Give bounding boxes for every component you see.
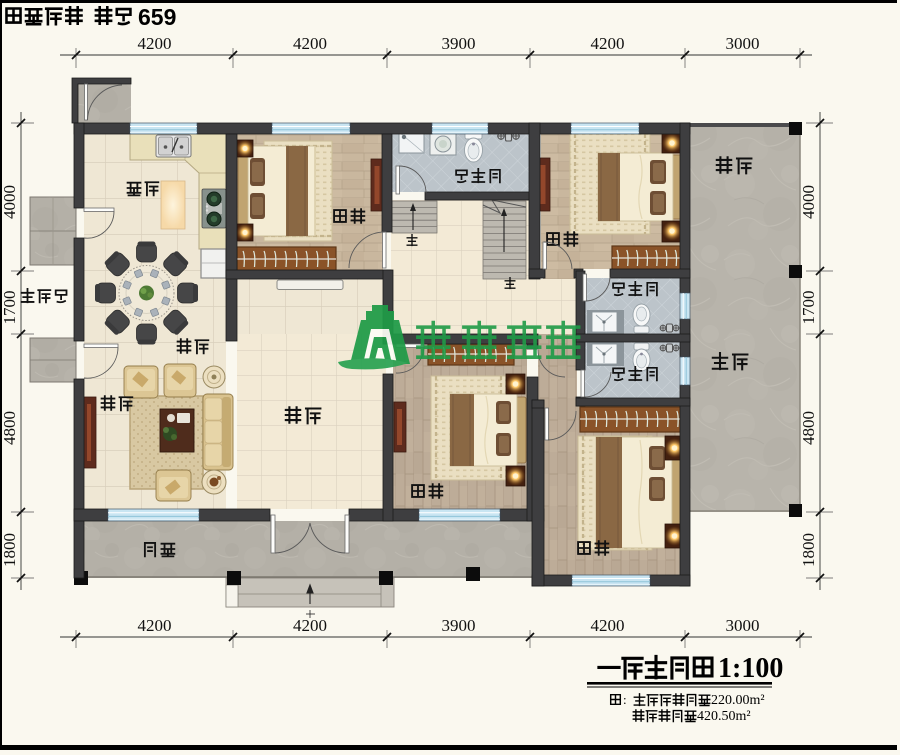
svg-text:4200: 4200 [293,616,327,635]
svg-text:3000: 3000 [726,34,760,53]
svg-text:659: 659 [138,4,176,30]
svg-text:220.00m²: 220.00m² [711,693,765,708]
svg-text:1800: 1800 [799,533,818,567]
svg-text:4800: 4800 [0,411,19,445]
svg-text:4800: 4800 [799,411,818,445]
svg-text:3900: 3900 [442,34,476,53]
svg-text:1700: 1700 [799,291,818,325]
svg-text:1800: 1800 [0,533,19,567]
svg-text:4200: 4200 [138,616,172,635]
svg-text:4200: 4200 [293,34,327,53]
svg-text:3900: 3900 [442,616,476,635]
svg-text::: : [623,692,627,707]
svg-text:4200: 4200 [591,34,625,53]
svg-text:1700: 1700 [0,291,19,325]
svg-text:4200: 4200 [138,34,172,53]
svg-text:4000: 4000 [0,185,19,219]
svg-text:4000: 4000 [799,185,818,219]
svg-text:420.50m²: 420.50m² [697,709,751,724]
svg-text:3000: 3000 [726,616,760,635]
svg-text:1:100: 1:100 [718,653,783,684]
svg-text:4200: 4200 [591,616,625,635]
